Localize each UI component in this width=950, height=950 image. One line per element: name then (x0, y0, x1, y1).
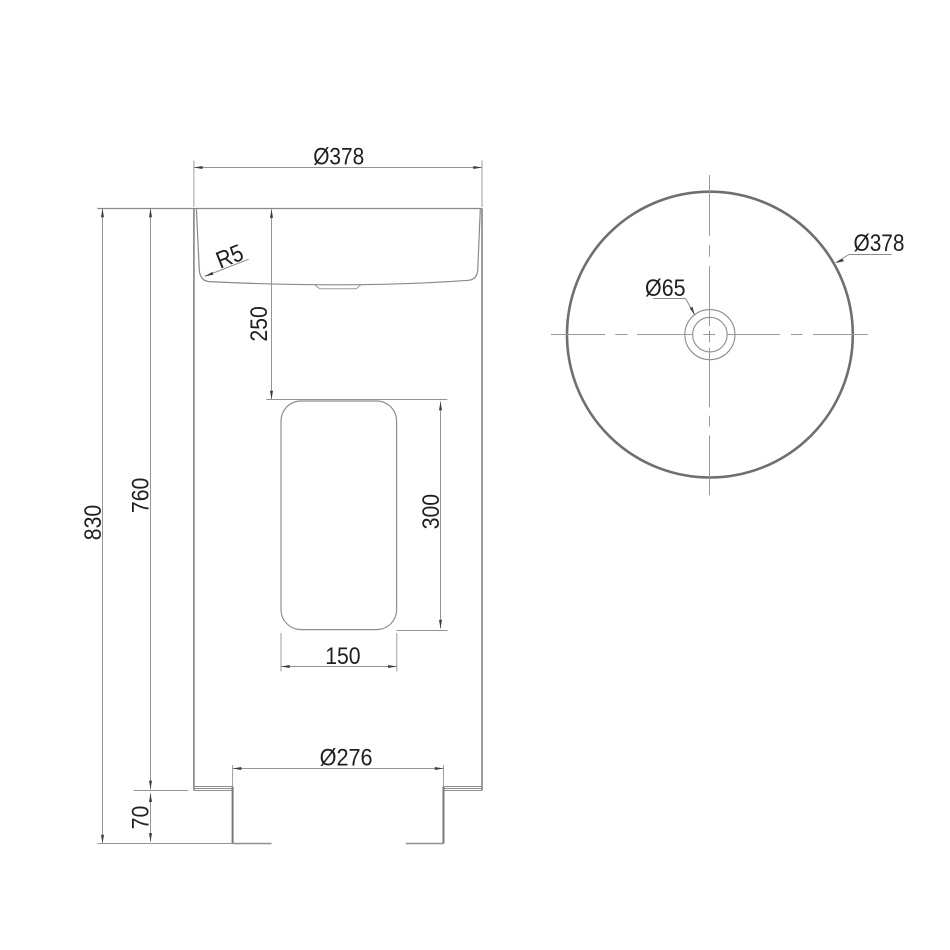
svg-text:70: 70 (128, 806, 155, 830)
svg-text:250: 250 (246, 306, 273, 341)
svg-text:Ø378: Ø378 (854, 230, 905, 257)
svg-text:830: 830 (80, 505, 107, 540)
svg-text:Ø378: Ø378 (313, 144, 364, 171)
svg-text:760: 760 (128, 478, 155, 513)
svg-text:Ø65: Ø65 (645, 275, 686, 302)
svg-text:Ø276: Ø276 (320, 745, 373, 772)
svg-text:300: 300 (418, 494, 445, 529)
svg-text:150: 150 (325, 643, 360, 670)
